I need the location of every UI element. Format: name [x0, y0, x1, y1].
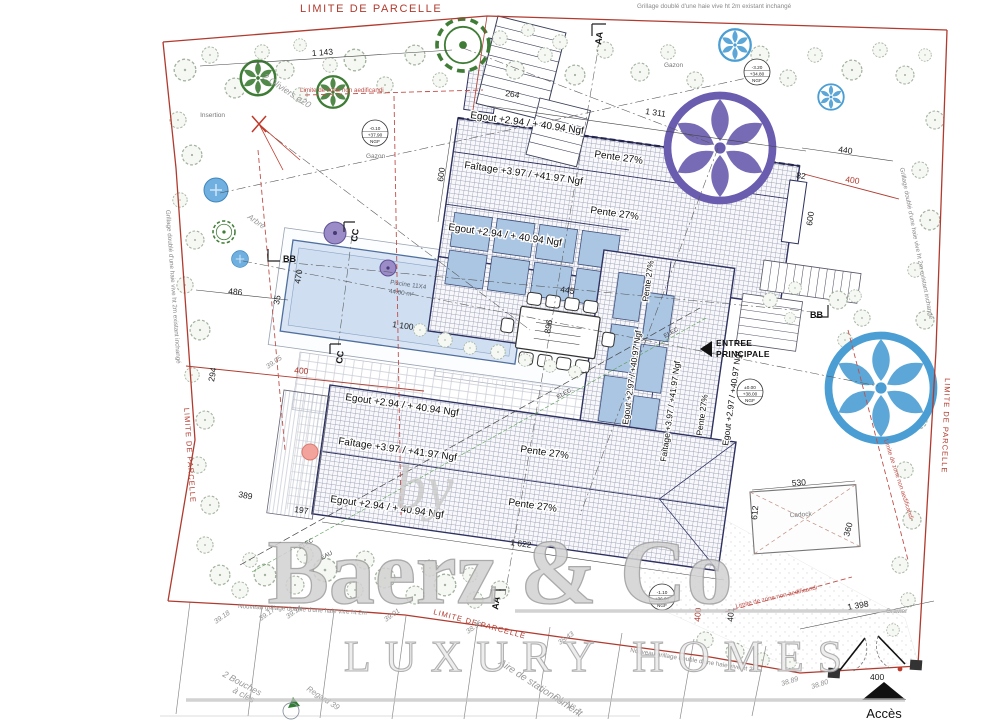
- level-value: -3.20: [752, 65, 763, 70]
- boundary-label-left: LIMITE DE PARCELLE: [182, 408, 198, 504]
- purple-tree-icon: [668, 96, 773, 201]
- dim-35: 35: [271, 294, 283, 305]
- level-value: +34.80: [750, 72, 765, 77]
- gate-post-right: [910, 660, 923, 671]
- level-value: -0.10: [370, 126, 381, 131]
- entrance-label-2: PRINCIPALE: [716, 349, 770, 359]
- gazon-label-1: Gazon: [366, 153, 386, 160]
- dim-440: 440: [838, 144, 854, 156]
- level-marker-garden-nw: -0.10 +37.90 NGF: [362, 120, 388, 146]
- dim-1311: 1 311: [645, 106, 667, 119]
- boundary-label-top: LIMITE DE PARCELLE: [300, 3, 442, 15]
- zone-label-top: Limite de zone non aedificandi: [300, 87, 384, 94]
- section-aa-top: AA: [593, 31, 605, 46]
- watermark-brand: Baerz & Co: [268, 521, 733, 623]
- dim-530: 530: [791, 477, 806, 488]
- dim-389: 389: [238, 489, 254, 501]
- level-value: +38.00: [743, 392, 758, 397]
- dim-612: 612: [749, 505, 760, 520]
- gazon-label-2: Gazon: [664, 62, 684, 69]
- spot-3905: 39.05: [265, 355, 283, 371]
- dim-264: 264: [505, 88, 521, 100]
- carport: Cadock: [750, 485, 860, 554]
- level-value: ±0.00: [744, 385, 756, 390]
- section-bb-right: BB: [810, 310, 823, 320]
- large-ring-tree-icon: [437, 19, 489, 71]
- dim-486: 486: [228, 286, 243, 297]
- watermark-by: by: [395, 454, 454, 522]
- boundary-label-right: LIMITE DE PARCELLE: [940, 378, 952, 474]
- entrance-label-1: ENTREE: [716, 338, 752, 348]
- dim-445: 445: [560, 284, 576, 296]
- watermark-tagline: LUXURY HOMES: [344, 632, 856, 681]
- fence-label-top: Grillage doublé d'une haie vive ht 2m ex…: [637, 3, 792, 10]
- section-cc-bottom: CC: [334, 350, 346, 365]
- level-unit: NGF: [745, 398, 755, 403]
- section-bb-left: BB: [283, 254, 296, 264]
- insertion-label: Insertion: [200, 112, 225, 119]
- site-plan-drawing: Piscine 11X4 44.00 m² Cado: [0, 0, 1000, 723]
- dim-600-right: 600: [804, 211, 816, 227]
- dim-294: 294: [206, 366, 218, 382]
- level-unit: NGF: [752, 78, 762, 83]
- site-plan-sheet: Piscine 11X4 44.00 m² Cado: [0, 0, 1000, 723]
- dim-400-gate: 400: [870, 672, 884, 682]
- level-value: +37.90: [368, 133, 383, 138]
- regard-label: Regard 39: [305, 684, 342, 712]
- spot-3918: 39.18: [213, 610, 231, 626]
- dim-197: 197: [294, 504, 310, 516]
- section-cc-top: CC: [349, 228, 361, 243]
- level-marker-garden-ne: -3.20 +34.80 NGF: [744, 59, 770, 85]
- dim-400-left: 400: [294, 365, 309, 376]
- dim-600-left: 600: [435, 167, 447, 183]
- level-unit: NGF: [370, 139, 380, 144]
- dim-400-right: 400: [845, 174, 861, 186]
- dim-82: 82: [796, 170, 807, 181]
- access-label: Accès: [866, 706, 902, 721]
- dim-1143: 1 143: [311, 47, 333, 58]
- access-arrow-icon: [862, 682, 906, 700]
- level-marker-entrance: ±0.00 +38.00 NGF: [737, 379, 763, 405]
- gate-point: [898, 667, 903, 672]
- fence-label-right: Grillage doublé d'une haie vive ht 2m ex…: [898, 167, 934, 320]
- pink-tree-icon: [302, 444, 318, 460]
